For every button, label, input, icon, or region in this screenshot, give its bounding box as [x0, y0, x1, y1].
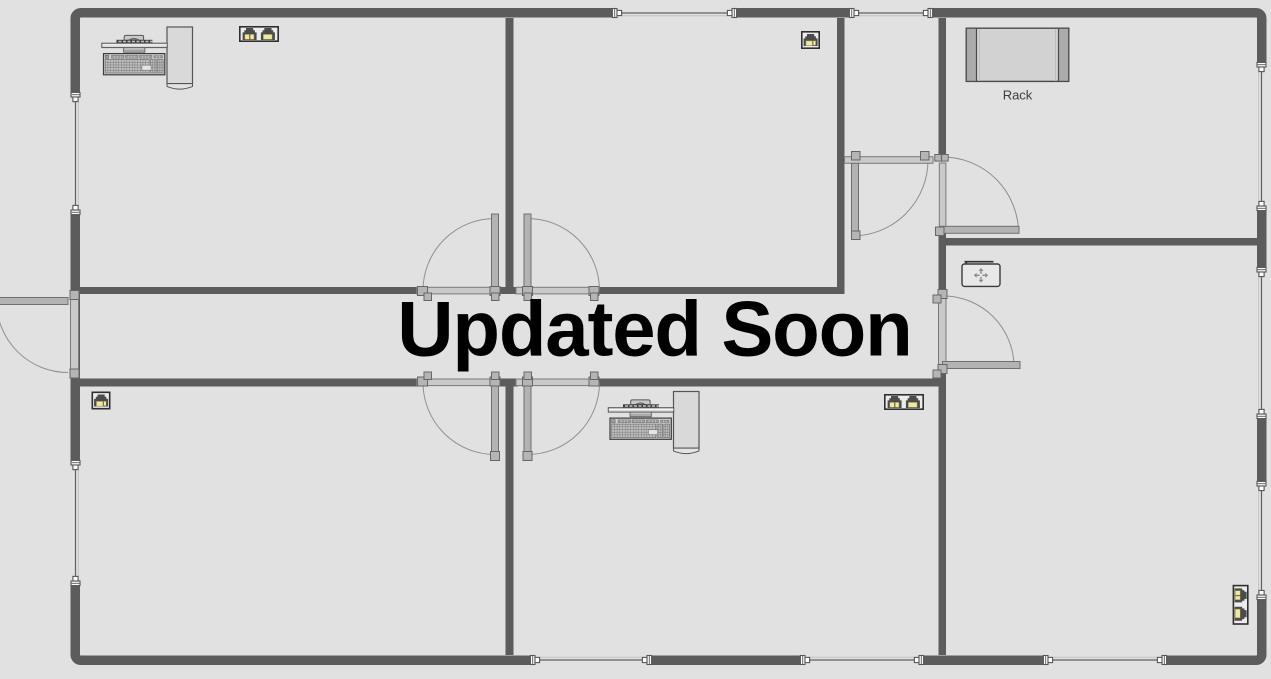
- svg-text:Rack: Rack: [1003, 88, 1033, 103]
- svg-text:Updated Soon: Updated Soon: [397, 285, 911, 373]
